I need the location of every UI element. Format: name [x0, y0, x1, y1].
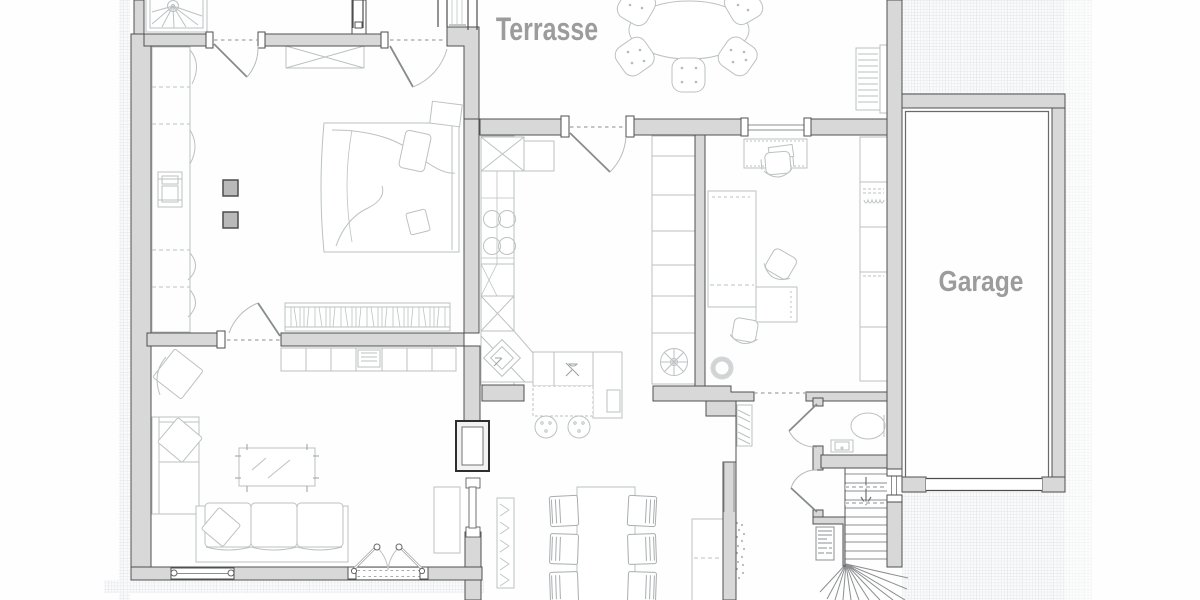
svg-text:Terrasse: Terrasse [496, 12, 598, 48]
svg-text:Garage: Garage [939, 265, 1024, 297]
